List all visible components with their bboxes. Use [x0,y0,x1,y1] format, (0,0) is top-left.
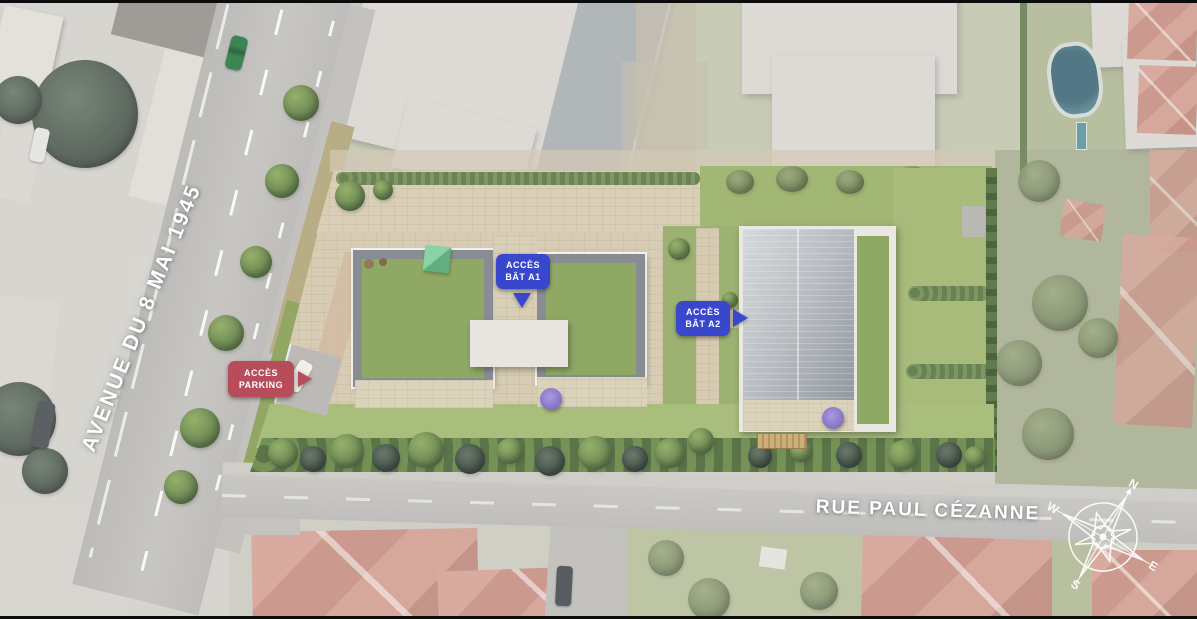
compass-letter-e: E [1146,558,1160,574]
building-a2-green-strip [857,236,889,424]
boundary-hedge [1020,0,1027,180]
access-bat-a2-badge: ACCÈS BÂT A2 [676,301,730,336]
access-bat-a1-line2: BÂT A1 [496,272,550,283]
tree [283,85,319,121]
tree [335,181,365,211]
compass-letter-w: W [1044,499,1061,517]
garden-shed [759,546,788,569]
tree [936,442,962,468]
hedge [776,166,808,192]
tree [268,438,298,468]
tree [836,442,862,468]
tree [240,246,272,278]
car [555,566,573,607]
tree [180,408,220,448]
building-a1-core [470,320,568,367]
canopy [423,245,452,274]
tree [578,436,612,470]
tree [535,446,565,476]
compass-letter-n: N [1126,477,1141,492]
tree [164,470,198,504]
house-roof [1127,1,1197,61]
spa-tub [379,258,387,266]
arrow-right-icon [733,309,748,327]
access-bat-a2-line2: BÂT A2 [676,319,730,330]
umbrella [822,407,844,429]
tree [408,432,444,468]
house-roof [1113,234,1197,428]
bench [757,433,807,449]
umbrella [540,388,562,410]
site-plan-aerial-view: ACCÈS PARKING ACCÈS BÂT A1 ACCÈS BÂT A2 … [0,0,1197,619]
tree [208,315,244,351]
tree [655,438,685,468]
access-bat-a2-line1: ACCÈS [676,307,730,318]
hedge [726,170,754,194]
hedge-row [908,286,990,301]
tree [800,572,838,610]
tree [330,434,364,468]
building-a1-left-wing-green-roof [362,259,484,378]
hedge [836,170,864,194]
tree [32,60,138,168]
house-roof [1137,65,1197,135]
tree [964,446,986,468]
tree [648,540,684,576]
tree [1018,160,1060,202]
arrow-down-icon [513,293,531,308]
tree [22,448,68,494]
tree [688,428,714,454]
lawn-paver [962,206,985,237]
tree [668,238,690,260]
access-parking-badge: ACCÈS PARKING [228,361,294,397]
lap-mat [1076,122,1087,150]
tree [688,578,730,619]
tree [497,438,523,464]
access-parking-line1: ACCÈS [228,368,294,379]
building-a2-roof-ridge [797,229,799,403]
tree [1022,408,1074,460]
compass-rose-icon: N E S W [1043,477,1163,597]
tree [622,446,648,472]
access-bat-a1-line1: ACCÈS [496,260,550,271]
tree [888,440,918,470]
tree [1032,275,1088,331]
tree [300,446,326,472]
tree [372,444,400,472]
tree [996,340,1042,386]
spa-tub [364,259,374,269]
letterbox-top [0,0,1197,3]
tree [265,164,299,198]
building-a1-terrace [355,380,493,408]
access-parking-line2: PARKING [228,380,294,391]
tree [1078,318,1118,358]
access-bat-a1-badge: ACCÈS BÂT A1 [496,254,550,289]
tree [373,180,393,200]
hedge-row [906,364,991,379]
arrow-right-icon [298,371,312,387]
compass-letter-s: S [1069,577,1083,593]
garden-shed-roof [1059,199,1106,242]
tree [455,444,485,474]
